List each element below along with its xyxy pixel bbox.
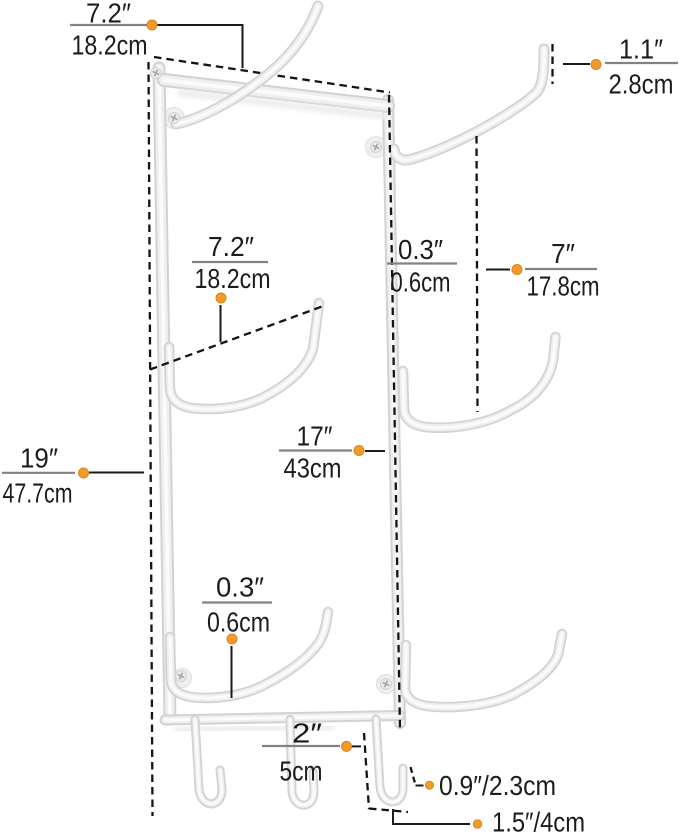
svg-text:1.5″/4cm: 1.5″/4cm xyxy=(492,807,585,834)
svg-text:17″: 17″ xyxy=(297,421,333,452)
svg-text:2″: 2″ xyxy=(292,718,322,749)
svg-text:19″: 19″ xyxy=(20,443,58,474)
svg-text:0.6cm: 0.6cm xyxy=(207,607,270,638)
svg-text:7″: 7″ xyxy=(551,238,575,269)
svg-text:1.1″: 1.1″ xyxy=(619,34,663,65)
svg-text:47.7cm: 47.7cm xyxy=(3,478,73,509)
svg-text:18.2cm: 18.2cm xyxy=(195,263,271,294)
svg-text:43cm: 43cm xyxy=(284,453,342,484)
svg-text:18.2cm: 18.2cm xyxy=(72,30,148,61)
svg-text:0.3″: 0.3″ xyxy=(398,234,443,265)
svg-text:0.3″: 0.3″ xyxy=(216,572,264,603)
svg-text:17.8cm: 17.8cm xyxy=(527,271,600,302)
svg-text:7.2″: 7.2″ xyxy=(208,231,254,262)
svg-text:0.6cm: 0.6cm xyxy=(391,267,451,298)
svg-text:5cm: 5cm xyxy=(280,756,323,787)
svg-text:7.2″: 7.2″ xyxy=(86,0,131,29)
svg-text:0.9″/2.3cm: 0.9″/2.3cm xyxy=(439,770,556,801)
svg-text:2.8cm: 2.8cm xyxy=(609,69,674,100)
